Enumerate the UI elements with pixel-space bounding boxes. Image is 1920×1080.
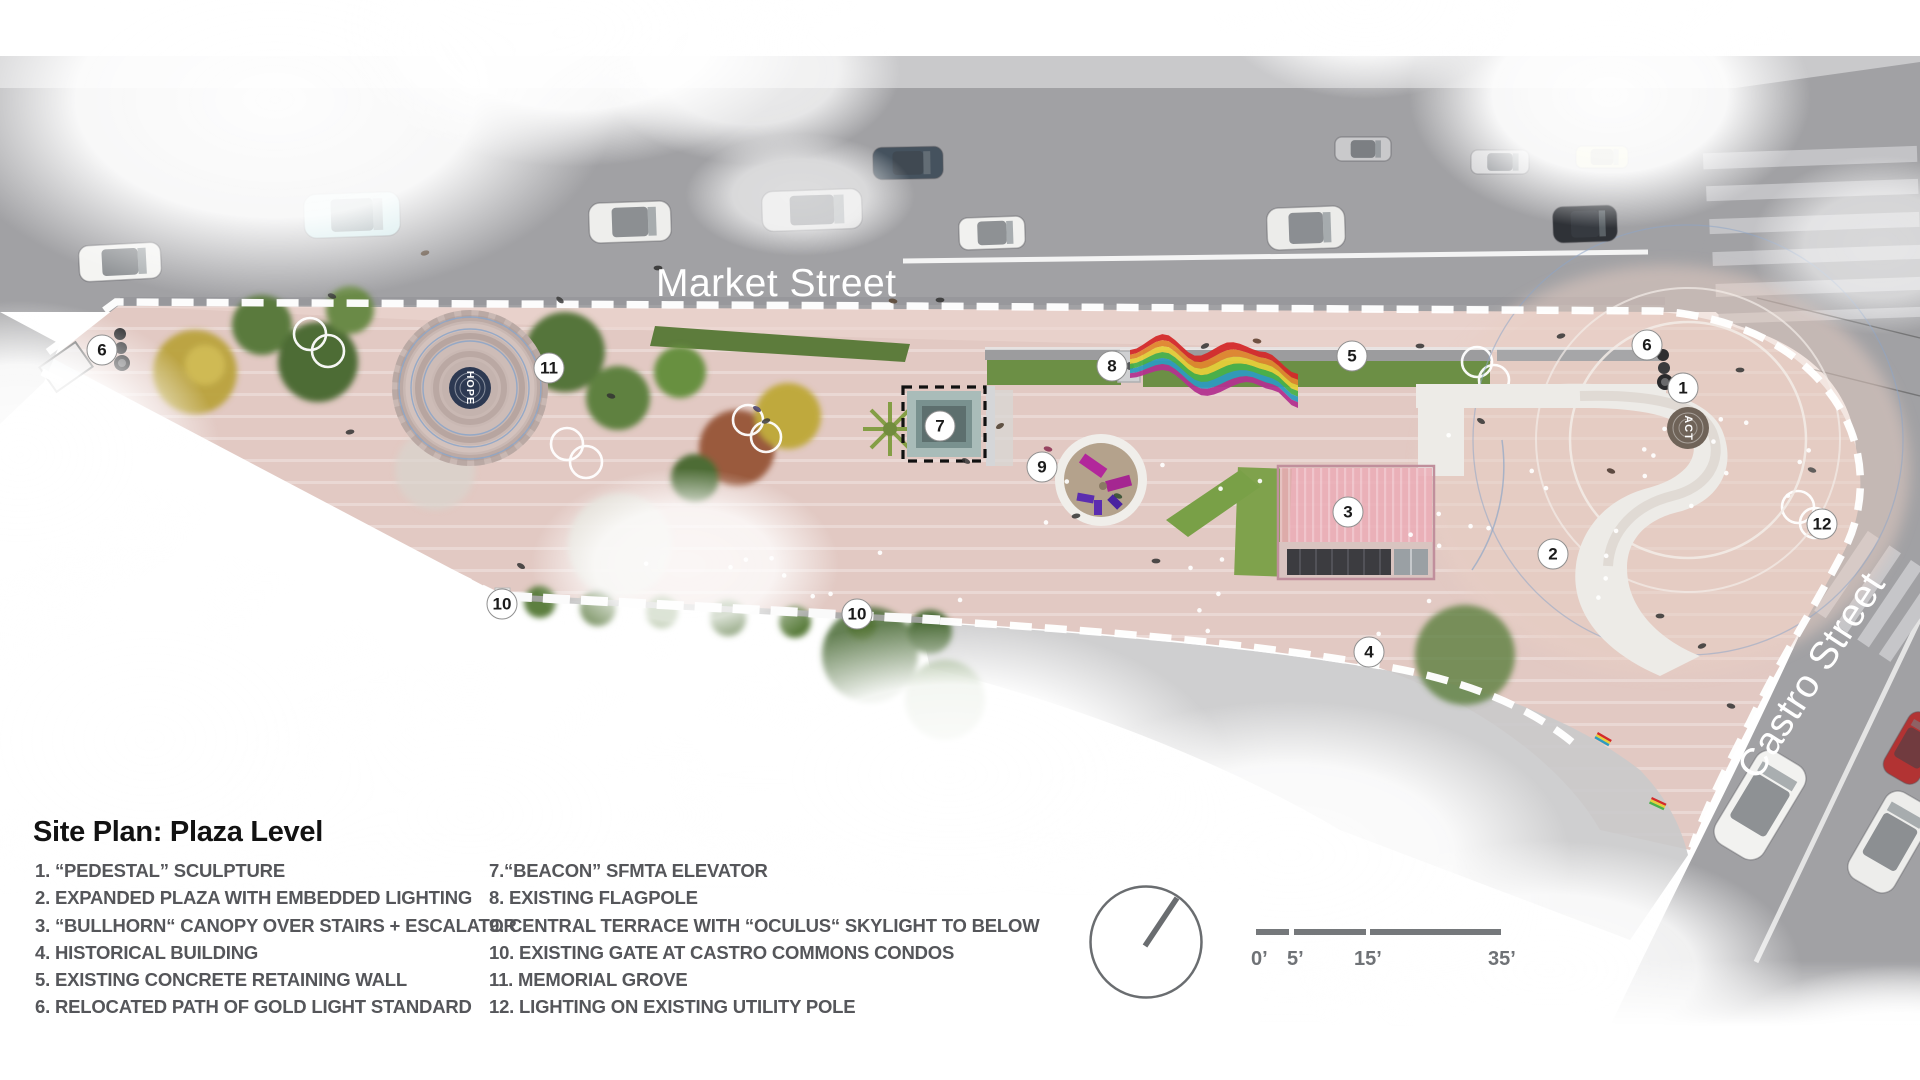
plan-marker-7: 7 bbox=[925, 411, 956, 442]
legend-item: 4. HISTORICAL BUILDING bbox=[35, 939, 517, 966]
vehicle bbox=[303, 191, 400, 238]
legend-item: 7.“BEACON” SFMTA ELEVATOR bbox=[489, 857, 1039, 884]
legend-item: 9. CENTRAL TERRACE WITH “OCULUS“ SKYLIGH… bbox=[489, 912, 1039, 939]
memorial-grove: HOPE bbox=[392, 310, 548, 466]
vehicle bbox=[873, 146, 944, 179]
legend-item: 1. “PEDESTAL” SCULPTURE bbox=[35, 857, 517, 884]
legend-item: 12. LIGHTING ON EXISTING UTILITY POLE bbox=[489, 993, 1039, 1020]
legend-column-1: 1. “PEDESTAL” SCULPTURE2. EXPANDED PLAZA… bbox=[35, 857, 517, 1021]
scale-label: 35’ bbox=[1488, 948, 1516, 971]
vehicle bbox=[1576, 146, 1628, 168]
plan-marker-1: 1 bbox=[1668, 373, 1699, 404]
plan-marker-11: 11 bbox=[534, 353, 565, 384]
vehicle bbox=[761, 188, 862, 231]
plan-marker-9: 9 bbox=[1027, 452, 1058, 483]
vehicle bbox=[1266, 206, 1345, 251]
beacon-elevator bbox=[903, 386, 1013, 466]
plan-marker-6: 6 bbox=[1632, 330, 1663, 361]
legend-item: 5. EXISTING CONCRETE RETAINING WALL bbox=[35, 966, 517, 993]
vehicle bbox=[1335, 137, 1391, 161]
plan-marker-5: 5 bbox=[1337, 341, 1368, 372]
vehicle bbox=[1552, 205, 1617, 243]
legend-item: 3. “BULLHORN“ CANOPY OVER STAIRS + ESCAL… bbox=[35, 912, 517, 939]
scale-segment bbox=[1370, 929, 1501, 935]
vehicle bbox=[588, 201, 671, 244]
legend-item: 10. EXISTING GATE AT CASTRO COMMONS COND… bbox=[489, 939, 1039, 966]
legend-column-2: 7.“BEACON” SFMTA ELEVATOR8. EXISTING FLA… bbox=[489, 857, 1039, 1021]
legend-item: 6. RELOCATED PATH OF GOLD LIGHT STANDARD bbox=[35, 993, 517, 1020]
plan-marker-6: 6 bbox=[87, 335, 118, 366]
scale-label: 5’ bbox=[1287, 948, 1304, 971]
market-street-label: Market Street bbox=[656, 262, 897, 306]
plan-marker-12: 12 bbox=[1807, 509, 1838, 540]
plan-marker-8: 8 bbox=[1097, 351, 1128, 382]
legend-item: 2. EXPANDED PLAZA WITH EMBEDDED LIGHTING bbox=[35, 884, 517, 911]
vehicle bbox=[958, 216, 1025, 250]
plan-marker-2: 2 bbox=[1538, 539, 1569, 570]
plan-marker-10: 10 bbox=[487, 589, 518, 620]
vehicle bbox=[78, 242, 162, 282]
scale-label: 15’ bbox=[1354, 948, 1382, 971]
scale-segment bbox=[1294, 929, 1366, 935]
scale-label: 0’ bbox=[1251, 948, 1268, 971]
north-arrow-compass bbox=[1088, 884, 1204, 1000]
plan-marker-3: 3 bbox=[1333, 497, 1364, 528]
legend-item: 8. EXISTING FLAGPOLE bbox=[489, 884, 1039, 911]
site-plan-page: HOPE ACT bbox=[0, 0, 1920, 1080]
hope-sculpture-text: HOPE bbox=[464, 371, 476, 406]
plan-marker-10: 10 bbox=[842, 599, 873, 630]
page-title: Site Plan: Plaza Level bbox=[33, 816, 323, 849]
legend-item: 11. MEMORIAL GROVE bbox=[489, 966, 1039, 993]
oculus-terrace bbox=[1055, 434, 1147, 526]
vehicle bbox=[1471, 150, 1529, 174]
plan-marker-4: 4 bbox=[1354, 637, 1385, 668]
scale-segment bbox=[1256, 929, 1289, 935]
act-sculpture-text: ACT bbox=[1682, 415, 1694, 441]
